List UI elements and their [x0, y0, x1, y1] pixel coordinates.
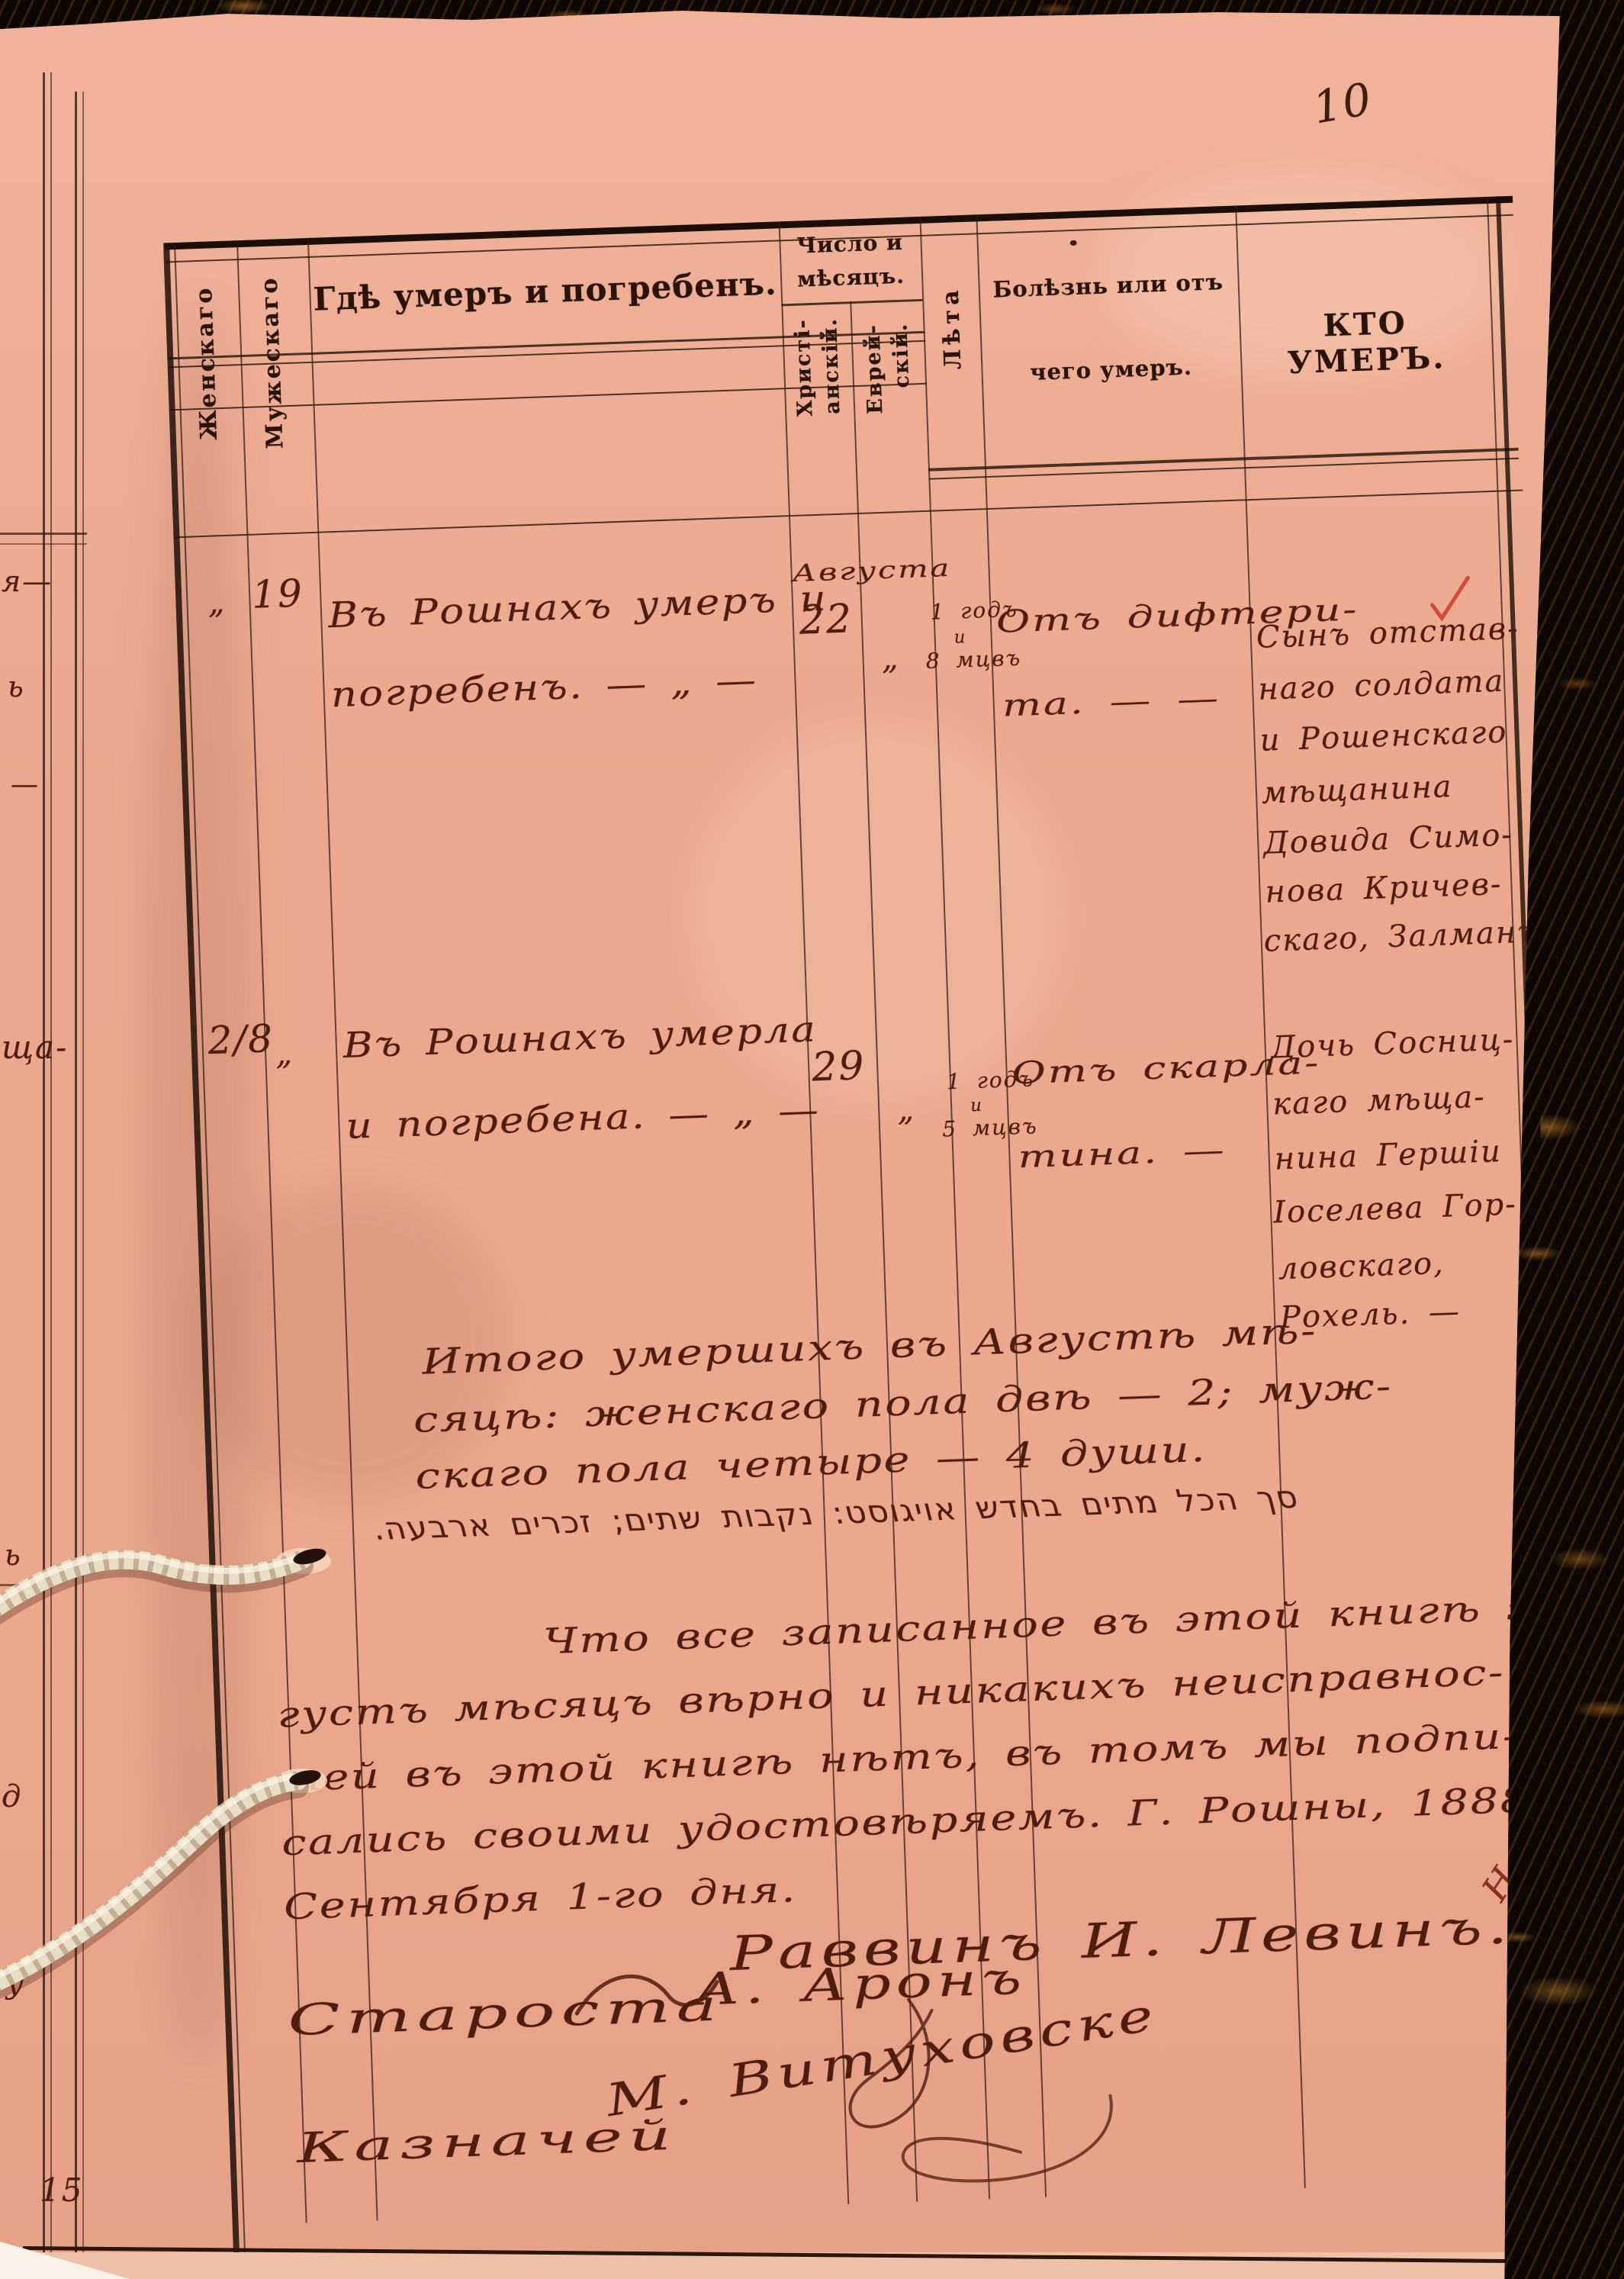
binding-cords [0, 0, 1624, 2279]
register-page-scan: я— ь — ща- ь д у 15 10 Жен [0, 0, 1624, 2279]
